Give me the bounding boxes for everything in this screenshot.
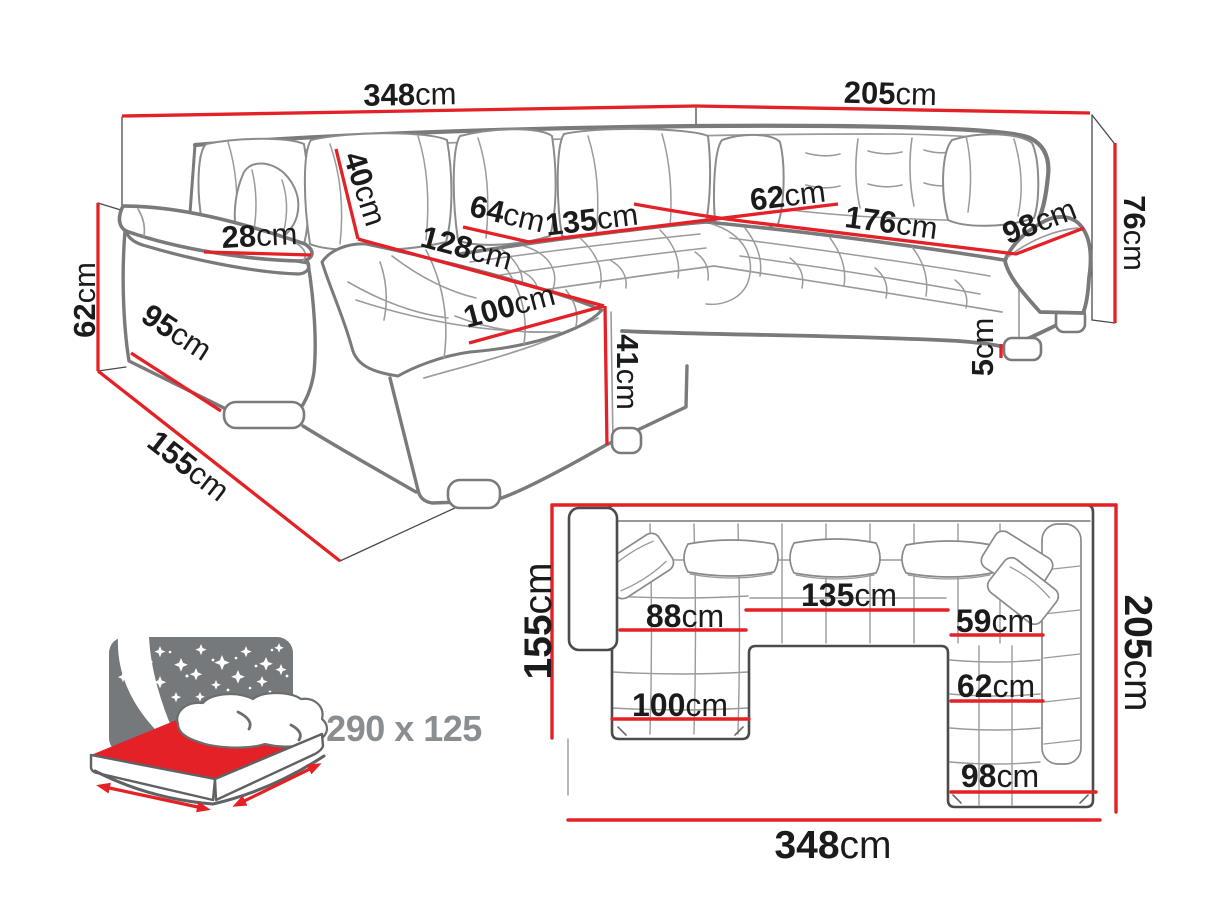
svg-text:205cm: 205cm xyxy=(1116,594,1159,711)
svg-text:62cm: 62cm xyxy=(67,262,102,338)
svg-text:98cm: 98cm xyxy=(961,758,1039,794)
svg-text:59cm: 59cm xyxy=(956,603,1034,639)
svg-text:62cm: 62cm xyxy=(957,668,1035,704)
svg-text:155cm: 155cm xyxy=(141,423,236,508)
svg-text:88cm: 88cm xyxy=(646,598,724,634)
svg-text:135cm: 135cm xyxy=(801,577,897,613)
svg-text:28cm: 28cm xyxy=(221,216,299,255)
svg-text:205cm: 205cm xyxy=(843,75,937,112)
svg-text:41cm: 41cm xyxy=(610,334,645,410)
svg-text:348cm: 348cm xyxy=(363,76,457,113)
svg-text:100cm: 100cm xyxy=(632,687,728,723)
svg-text:155cm: 155cm xyxy=(517,562,560,679)
svg-text:5cm: 5cm xyxy=(965,318,1000,377)
svg-text:290 x 125: 290 x 125 xyxy=(326,708,482,749)
svg-text:348cm: 348cm xyxy=(774,824,891,867)
svg-text:76cm: 76cm xyxy=(1117,195,1152,271)
